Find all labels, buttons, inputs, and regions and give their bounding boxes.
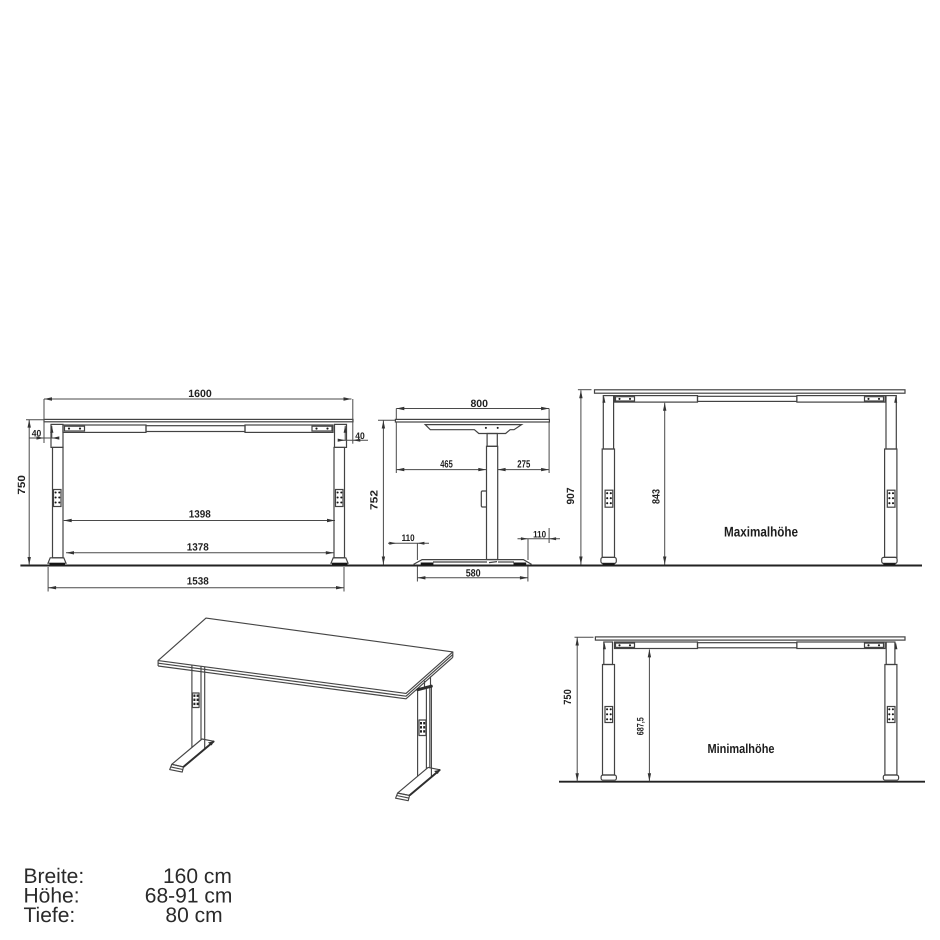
svg-text:1378: 1378 <box>187 541 209 553</box>
svg-text:110: 110 <box>533 530 546 541</box>
svg-text:275: 275 <box>517 458 530 470</box>
svg-text:580: 580 <box>466 567 481 579</box>
svg-text:1538: 1538 <box>187 575 209 587</box>
svg-text:Tiefe:: Tiefe: <box>24 904 76 927</box>
svg-text:40: 40 <box>355 431 365 442</box>
svg-text:110: 110 <box>402 533 415 544</box>
svg-text:687,5: 687,5 <box>636 717 647 736</box>
svg-text:752: 752 <box>369 490 381 510</box>
svg-text:800: 800 <box>470 398 488 410</box>
svg-text:843: 843 <box>650 489 662 504</box>
svg-text:1600: 1600 <box>188 388 212 400</box>
svg-text:80 cm: 80 cm <box>165 904 222 927</box>
svg-text:750: 750 <box>562 689 574 705</box>
svg-text:1398: 1398 <box>189 509 211 521</box>
svg-text:465: 465 <box>440 458 453 470</box>
svg-text:Maximalhöhe: Maximalhöhe <box>724 524 798 540</box>
svg-text:907: 907 <box>565 487 577 504</box>
svg-text:750: 750 <box>16 475 28 495</box>
svg-text:40: 40 <box>32 428 42 439</box>
svg-text:Minimalhöhe: Minimalhöhe <box>708 741 775 756</box>
